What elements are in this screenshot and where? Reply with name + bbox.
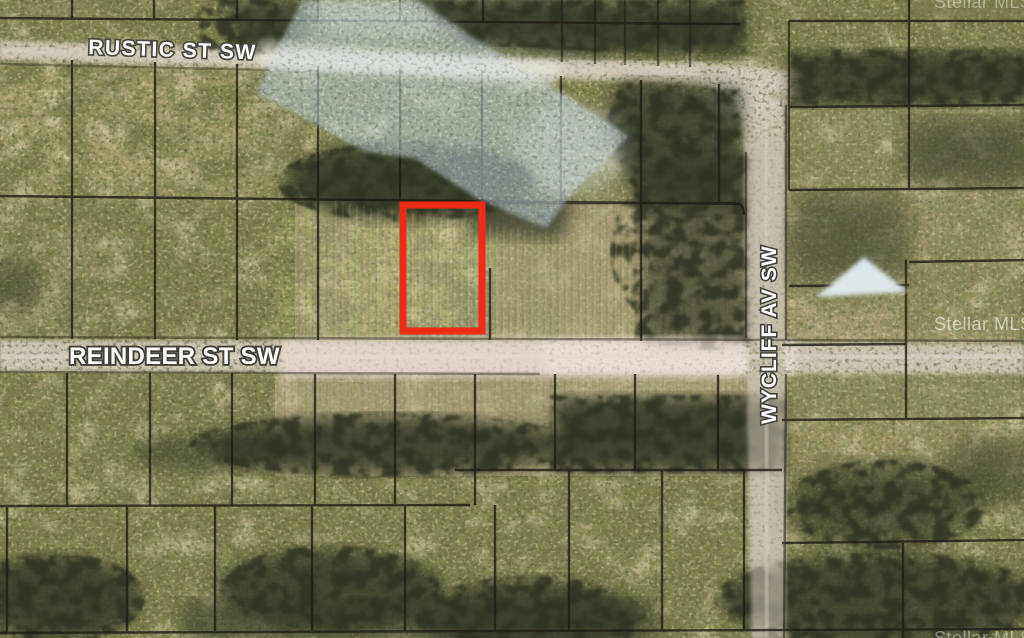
- svg-text:Stellar MLS: Stellar MLS: [934, 0, 1024, 12]
- svg-text:Stellar MLS: Stellar MLS: [934, 628, 1024, 638]
- svg-text:REINDEER ST SW: REINDEER ST SW: [69, 343, 280, 370]
- svg-text:WYCLIFF AV SW: WYCLIFF AV SW: [758, 245, 781, 424]
- svg-text:Stellar MLS: Stellar MLS: [934, 314, 1024, 334]
